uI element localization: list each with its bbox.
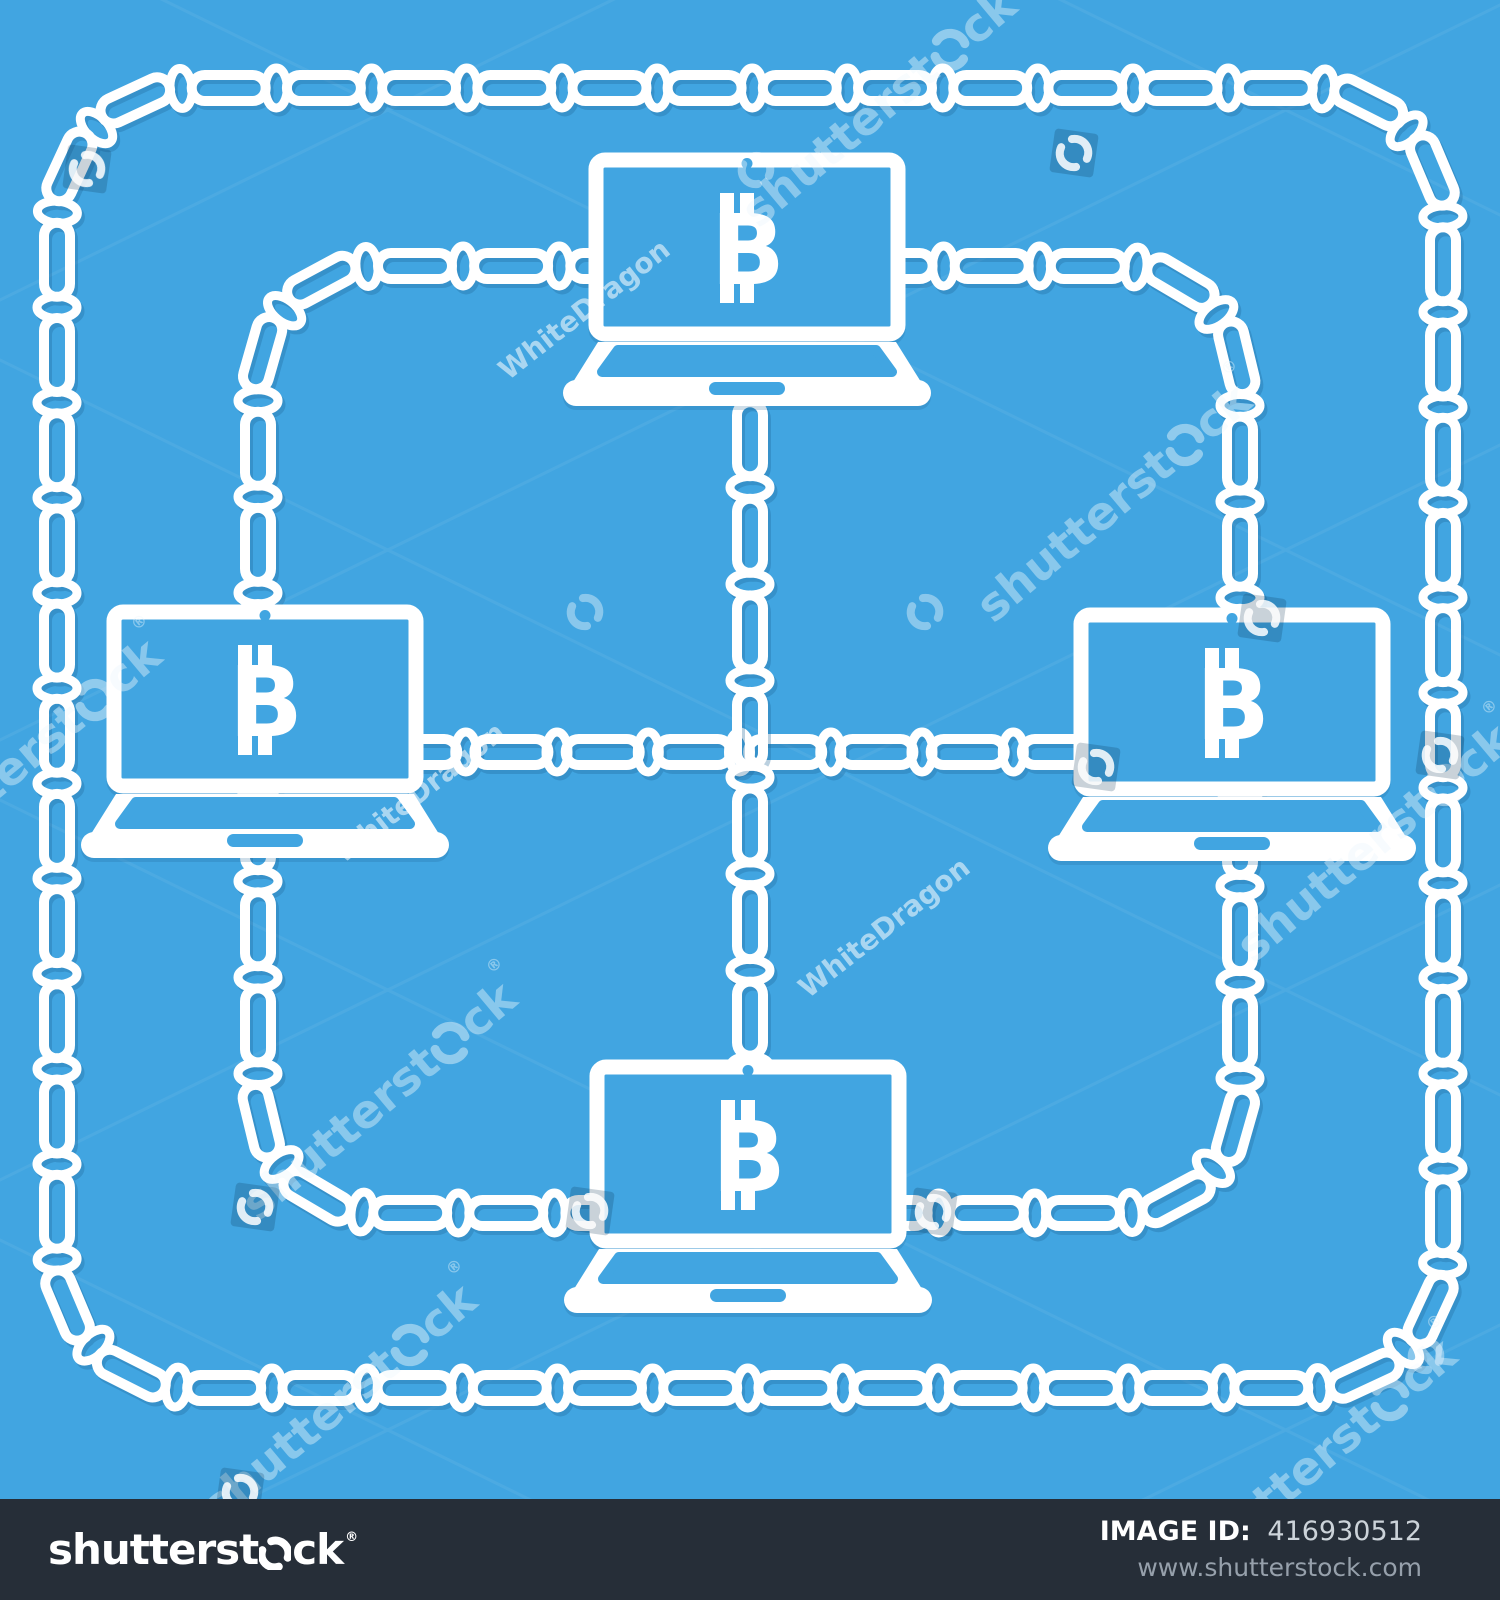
watermark-aperture-icon (1415, 730, 1465, 780)
website-url: www.shutterstock.com (1100, 1551, 1422, 1585)
logo-aperture-icon (259, 1536, 291, 1570)
laptop-bottom (564, 1065, 932, 1313)
stock-image-preview: B (0, 0, 1500, 1600)
logo-text-right: ck (292, 1529, 343, 1571)
image-id-label: IMAGE ID: (1100, 1516, 1251, 1547)
illustration-canvas: B (0, 0, 1500, 1500)
watermark-aperture-icon (908, 1187, 958, 1237)
shutterstock-logo: shutterst ck ® (48, 1529, 357, 1571)
watermark-aperture-icon (1071, 742, 1121, 792)
image-id-value: 416930512 (1267, 1516, 1422, 1547)
watermark-aperture-icon (1237, 593, 1287, 643)
image-id: IMAGE ID: 416930512 (1100, 1514, 1422, 1550)
logo-text-left: shutterst (48, 1529, 258, 1571)
watermark-aperture-icon (62, 144, 112, 194)
watermark-aperture-icon (565, 1186, 615, 1236)
image-meta: IMAGE ID: 416930512 www.shutterstock.com (1100, 1514, 1422, 1584)
registered-mark: ® (345, 1531, 357, 1544)
watermark-aperture-icon (230, 1182, 280, 1232)
footer-bar: shutterst ck ® IMAGE ID: 416930512 www.s… (0, 1499, 1500, 1600)
watermark-aperture-icon (1049, 128, 1099, 178)
